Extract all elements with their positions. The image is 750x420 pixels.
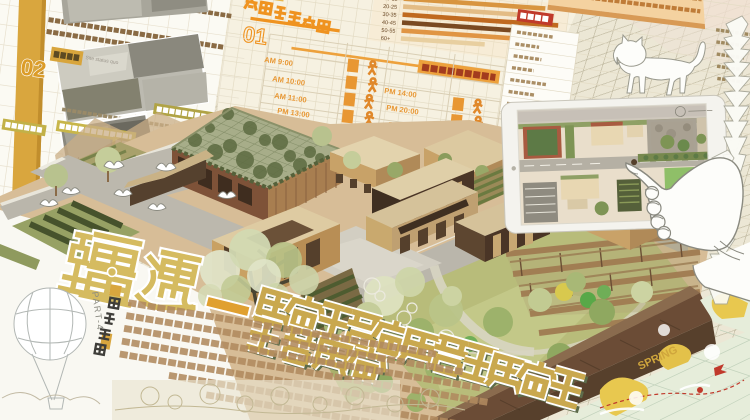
svg-text:20-25: 20-25 [383,4,397,11]
svg-text:60+: 60+ [381,36,391,43]
svg-text:40-45: 40-45 [382,20,396,27]
svg-text:30-35: 30-35 [382,12,396,19]
svg-text:02: 02 [19,54,48,83]
svg-text:01: 01 [241,21,269,49]
svg-text:50-55: 50-55 [381,28,395,35]
